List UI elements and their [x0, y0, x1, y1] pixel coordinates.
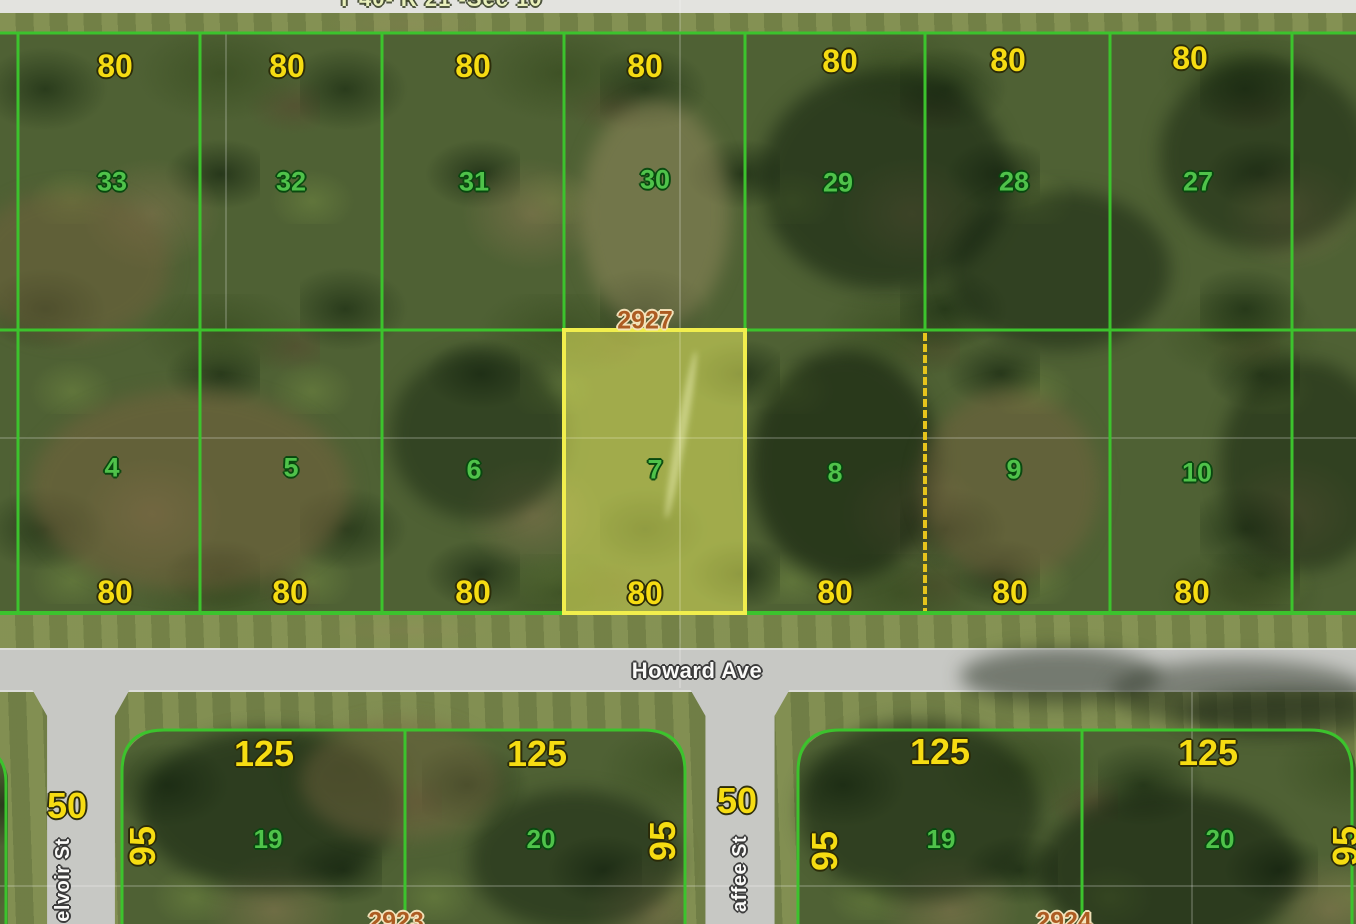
lot-depth-label: 125 — [507, 736, 567, 772]
lot-number: 29 — [823, 170, 853, 197]
township-range-section-label: T 40- R 21 -Sec 10 — [337, 0, 542, 10]
lot-width-label: 80 — [272, 576, 308, 608]
lot-width-label: 80 — [455, 576, 491, 608]
lot-number: 9 — [1006, 457, 1021, 484]
lot-number: 33 — [97, 169, 127, 196]
lot-width-label: 80 — [1172, 42, 1208, 74]
lot-depth-label: 125 — [910, 734, 970, 770]
lot-width-label: 80 — [455, 50, 491, 82]
lot-width-label: 80 — [822, 45, 858, 77]
lot-width-label: 80 — [992, 576, 1028, 608]
lot-number: 32 — [276, 169, 306, 196]
street-label-belvoir-st: elvoir St — [53, 838, 73, 921]
parcel-boundaries-overlay — [0, 0, 1356, 924]
lot-number: 8 — [827, 460, 842, 487]
parcel-address-label: 2924 — [1036, 910, 1092, 924]
lot-number: 4 — [104, 455, 119, 482]
lot-number: 5 — [283, 455, 298, 482]
lot-side-label: 95 — [807, 831, 843, 871]
lot-width-label: 80 — [97, 50, 133, 82]
lot-width-label: 80 — [97, 576, 133, 608]
lot-side-label: 95 — [125, 826, 161, 866]
parcel-address-label: 2927 — [617, 309, 673, 334]
lot-number: 19 — [254, 826, 283, 852]
lot-number: 27 — [1183, 169, 1213, 196]
lot-side-label: 95 — [645, 821, 681, 861]
lot-number: 10 — [1182, 460, 1212, 487]
lot-number: 20 — [527, 826, 556, 852]
lot-number: 28 — [999, 169, 1029, 196]
lot-number: 20 — [1206, 826, 1235, 852]
lot-width-label: 80 — [990, 44, 1026, 76]
lot-width-label: 80 — [1174, 576, 1210, 608]
street-width-label: 50 — [47, 788, 87, 824]
lot-width-label: 80 — [817, 576, 853, 608]
lot-width-label: 80 — [627, 577, 663, 609]
lot-width-label: 80 — [627, 50, 663, 82]
lot-number: 6 — [466, 457, 481, 484]
lot-number: 30 — [640, 167, 670, 194]
gis-map-canvas[interactable]: T 40- R 21 -Sec 10 80 80 80 80 80 80 80 … — [0, 0, 1356, 924]
lot-number: 31 — [459, 169, 489, 196]
lot-depth-label: 125 — [1178, 735, 1238, 771]
lot-side-label: 95 — [1328, 826, 1356, 866]
parcel-address-label: 2923 — [368, 910, 424, 924]
lot-number: 19 — [927, 826, 956, 852]
street-label-chaffee-st: affee St — [730, 836, 750, 912]
lot-width-label: 80 — [269, 50, 305, 82]
lot-number-selected: 7 — [647, 457, 662, 484]
street-width-label: 50 — [717, 783, 757, 819]
lot-depth-label: 125 — [234, 736, 294, 772]
street-label-howard-ave: Howard Ave — [632, 660, 763, 682]
